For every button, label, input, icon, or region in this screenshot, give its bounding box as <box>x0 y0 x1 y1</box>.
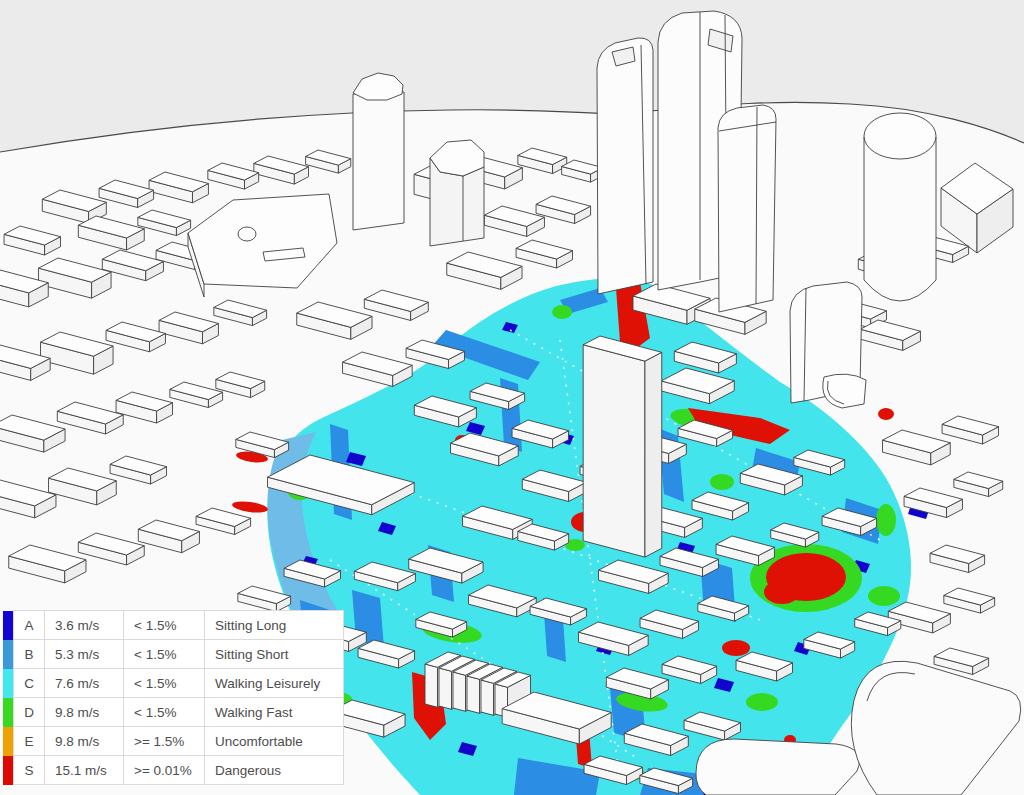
legend-activity: Walking Fast <box>205 698 344 727</box>
legend-activity: Dangerous <box>205 756 344 785</box>
legend-wind-speed: 9.8 m/s <box>45 727 124 756</box>
legend-activity: Sitting Short <box>205 640 344 669</box>
legend-color-swatch <box>3 669 14 698</box>
legend-color-swatch <box>3 727 14 756</box>
legend-wind-speed: 5.3 m/s <box>45 640 124 669</box>
legend-category: D <box>14 698 45 727</box>
legend-row: S15.1 m/s>= 0.01%Dangerous <box>3 756 344 785</box>
legend-category: S <box>14 756 45 785</box>
legend-frequency: < 1.5% <box>124 640 205 669</box>
legend-activity: Sitting Long <box>205 611 344 640</box>
legend-wind-speed: 15.1 m/s <box>45 756 124 785</box>
legend-activity: Walking Leisurely <box>205 669 344 698</box>
legend-category: E <box>14 727 45 756</box>
legend-row: E9.8 m/s>= 1.5%Uncomfortable <box>3 727 344 756</box>
legend-category: A <box>14 611 45 640</box>
legend-color-swatch <box>3 698 14 727</box>
legend-wind-speed: 7.6 m/s <box>45 669 124 698</box>
wind-comfort-legend: A3.6 m/s< 1.5%Sitting LongB5.3 m/s< 1.5%… <box>3 610 344 785</box>
octagonal-midrise <box>430 140 484 246</box>
legend-color-swatch <box>3 756 14 785</box>
skyscraper-a <box>597 38 653 294</box>
rounded-slab-building <box>696 739 860 795</box>
legend-activity: Uncomfortable <box>205 727 344 756</box>
legend-row: B5.3 m/s< 1.5%Sitting Short <box>3 640 344 669</box>
legend-color-swatch <box>3 640 14 669</box>
wind-comfort-visualization: A3.6 m/s< 1.5%Sitting LongB5.3 m/s< 1.5%… <box>0 0 1024 795</box>
octagonal-tower <box>353 73 404 230</box>
legend-frequency: < 1.5% <box>124 669 205 698</box>
legend-frequency: >= 1.5% <box>124 727 205 756</box>
cylindrical-tower <box>864 113 936 301</box>
legend-row: C7.6 m/s< 1.5%Walking Leisurely <box>3 669 344 698</box>
legend-wind-speed: 3.6 m/s <box>45 611 124 640</box>
legend-wind-speed: 9.8 m/s <box>45 698 124 727</box>
legend-frequency: < 1.5% <box>124 698 205 727</box>
legend-row: D9.8 m/s< 1.5%Walking Fast <box>3 698 344 727</box>
legend-category: C <box>14 669 45 698</box>
legend-color-swatch <box>3 611 14 640</box>
skyscraper-c <box>718 105 776 312</box>
legend-category: B <box>14 640 45 669</box>
legend-frequency: < 1.5% <box>124 611 205 640</box>
legend-frequency: >= 0.01% <box>124 756 205 785</box>
legend-row: A3.6 m/s< 1.5%Sitting Long <box>3 611 344 640</box>
